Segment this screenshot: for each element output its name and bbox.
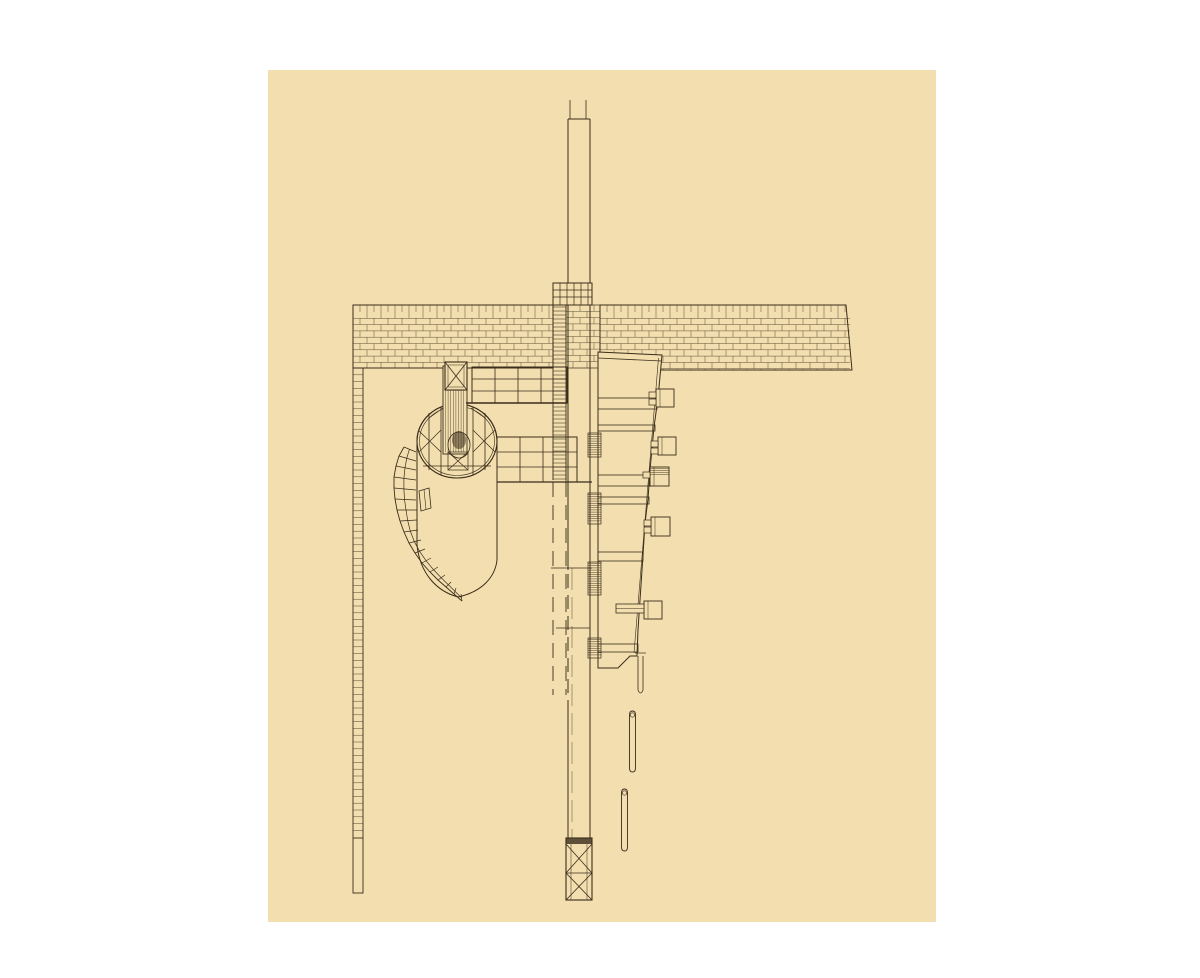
wing-bracket-e	[644, 601, 662, 619]
wing-bracket-a	[649, 389, 674, 407]
mast-cap-box	[553, 283, 592, 305]
architectural-drawing	[0, 0, 1200, 978]
mast-foot-cap-band	[566, 838, 592, 844]
drawing-canvas	[0, 0, 1200, 978]
stair-core-fill	[452, 431, 466, 449]
